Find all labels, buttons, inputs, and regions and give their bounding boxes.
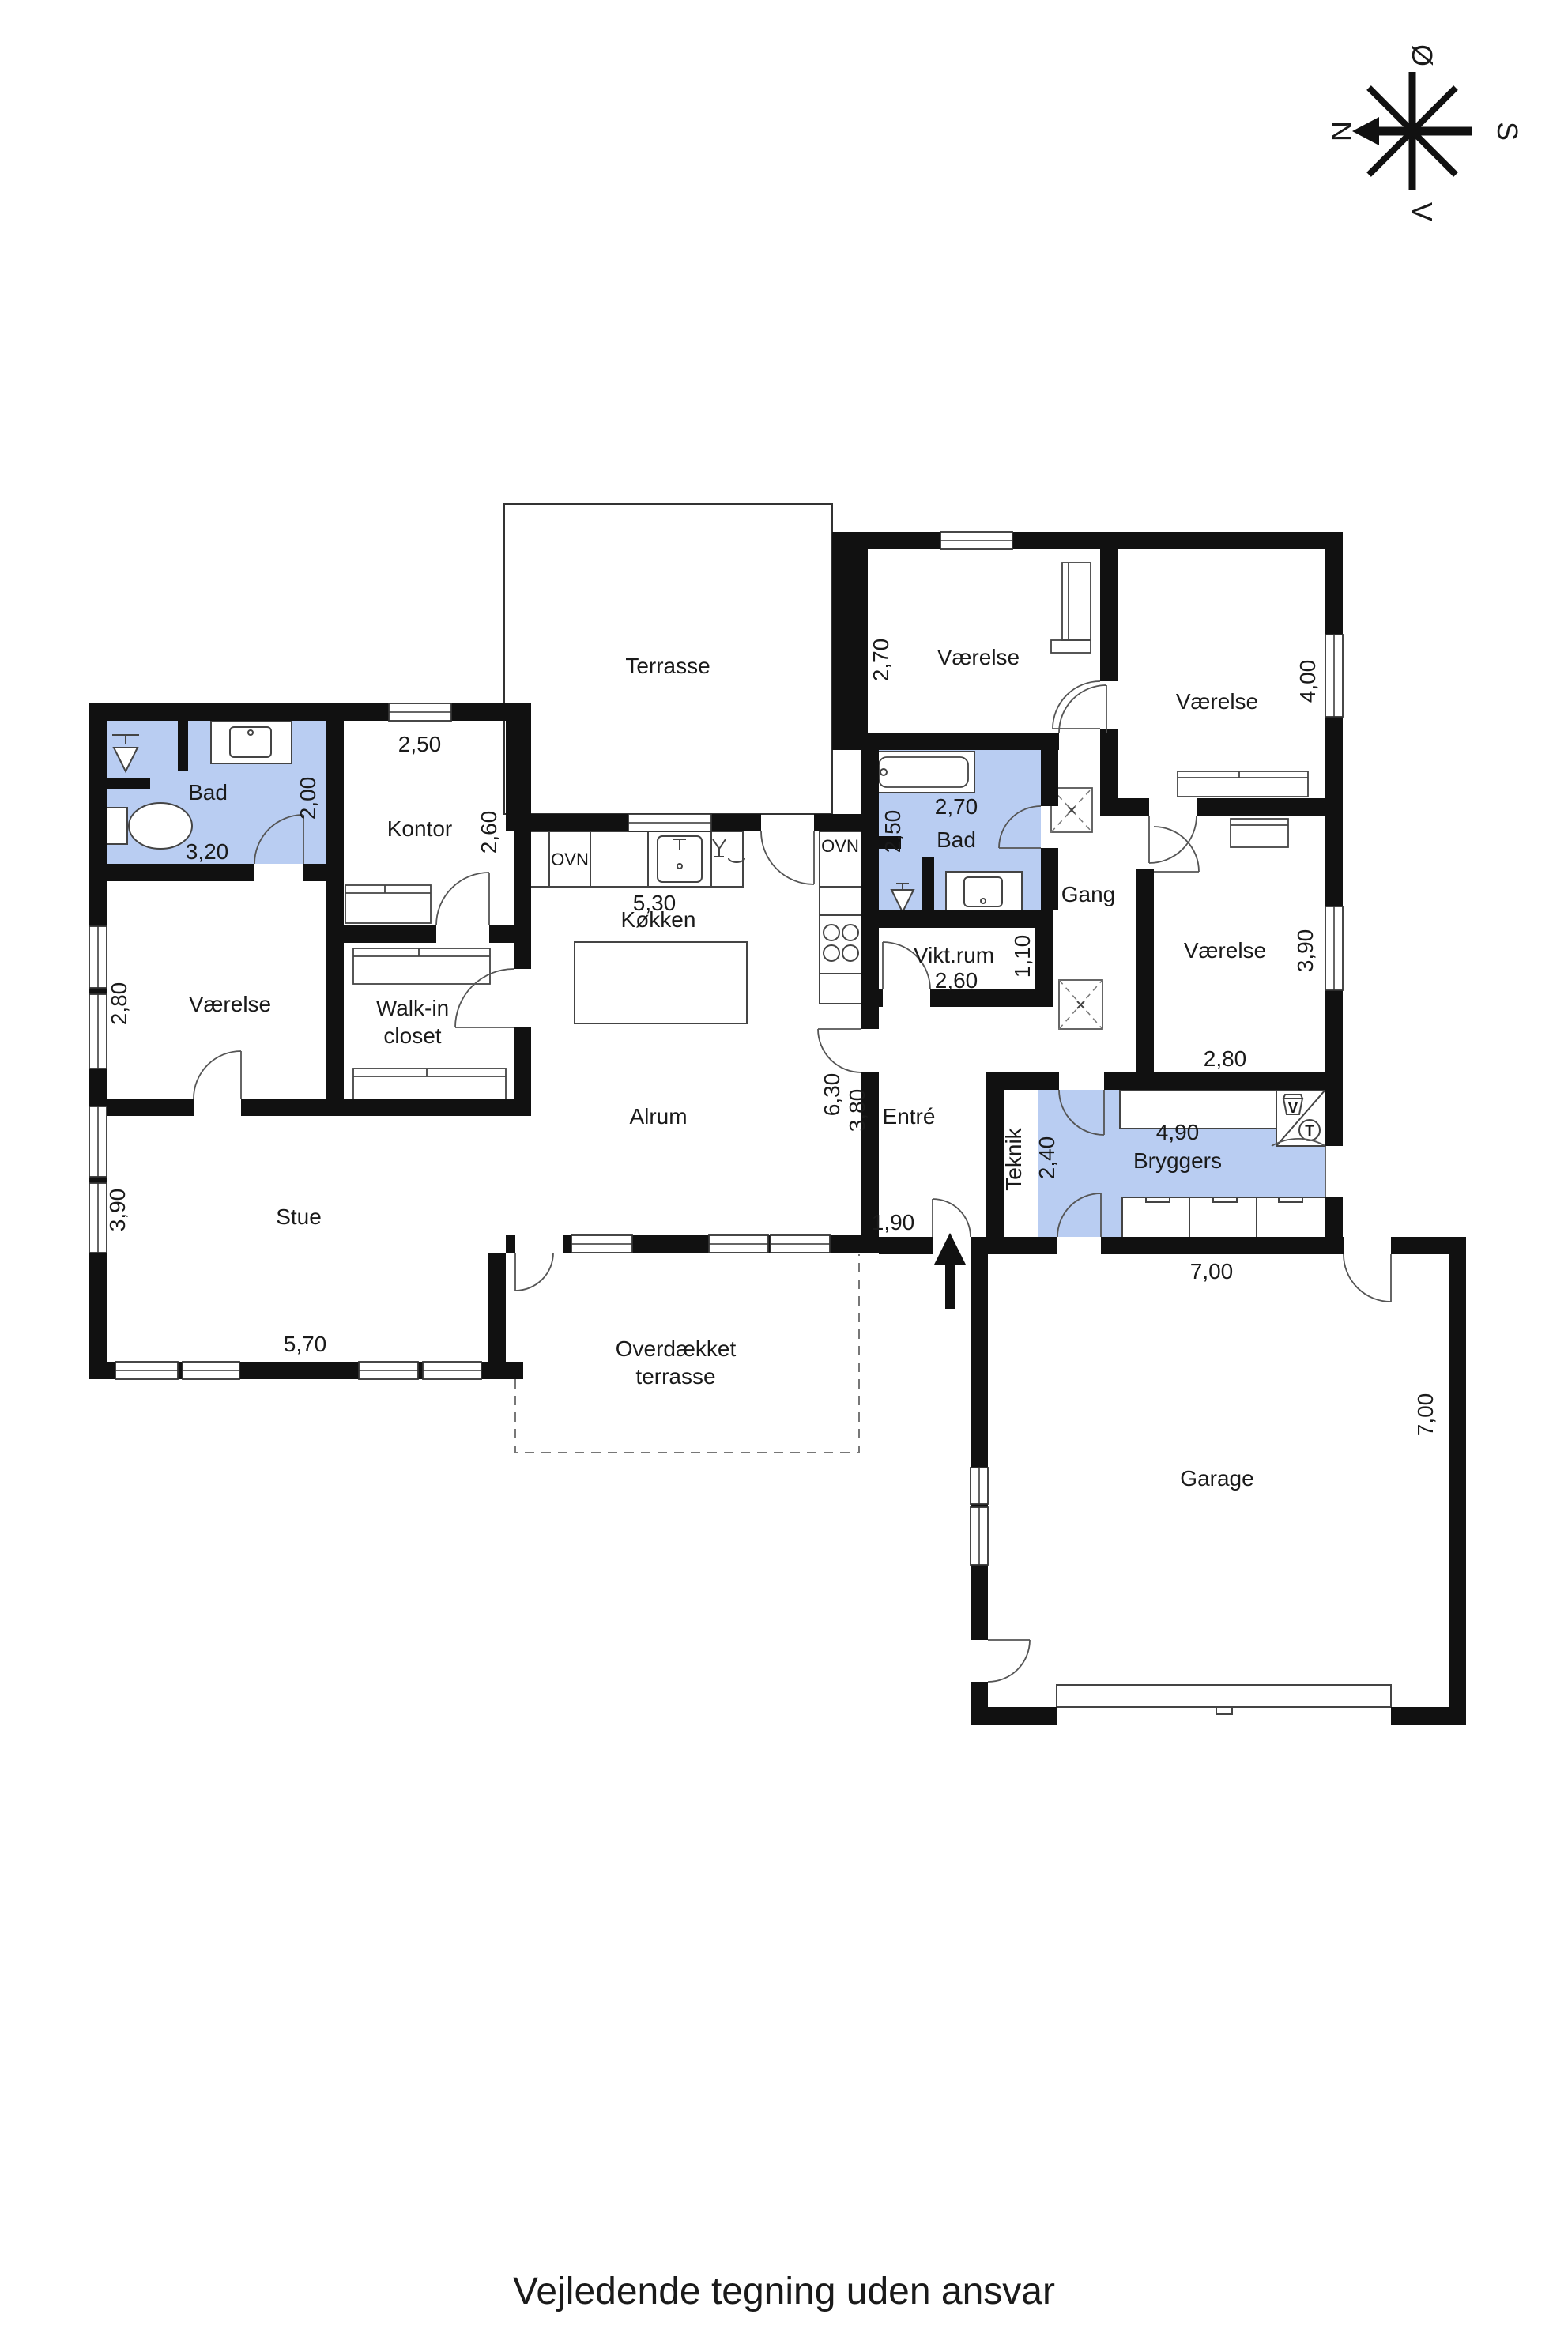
skylight-icon [1059,980,1102,1029]
wardrobe-icon [1178,771,1308,797]
washer-label: V [1288,1100,1298,1117]
room-label-bryggers: Bryggers [1133,1148,1222,1173]
room-label-bad-west: Bad [188,780,228,805]
dim-vaerelse-ne: 4,00 [1295,660,1320,703]
dim-teknik: 2,40 [1035,1136,1059,1180]
window [771,1235,830,1253]
window [1325,906,1343,990]
kitchen-tall-counter [820,831,861,1004]
compass-label-west: V [1406,202,1438,221]
appliance-label-oven-left: OVN [551,850,589,869]
dim-entre-h: 3,80 [845,1089,869,1133]
wardrobe-icon [353,948,490,984]
door-gang-north [1059,685,1106,733]
door-vaerelse-west [194,1051,241,1099]
room-label-alrum: Alrum [629,1104,687,1129]
dim-kontor-h: 2,60 [477,811,501,854]
room-label-entre: Entré [883,1104,936,1129]
window [89,1106,107,1177]
toilet-bowl-icon [129,803,192,849]
disclaimer-text: Vejledende tegning uden ansvar [513,2271,1055,2312]
compass: N Ø S V [1325,44,1524,221]
room-label-bad-middle: Bad [937,827,976,852]
window [183,1362,239,1379]
window [571,1235,632,1253]
window [628,814,711,831]
dim-alrum: 6,30 [820,1073,844,1117]
room-label-overdaekket-2: terrasse [635,1364,715,1389]
room-label-walkin-2: closet [383,1023,441,1048]
compass-label-south: S [1491,122,1524,141]
dim-bad-middle-w: 2,70 [935,794,978,819]
dim-viktrum-h: 1,10 [1010,935,1035,978]
window [89,994,107,1069]
dim-bryggers-outer: 7,00 [1190,1259,1234,1283]
dryer-label: T [1305,1123,1314,1140]
door-front-entrance [933,1199,971,1237]
room-label-koekken: Køkken [621,907,696,932]
bad-west-sink-icon [230,727,271,757]
room-label-terrasse: Terrasse [625,654,710,678]
window [389,703,451,721]
window [423,1362,481,1379]
door-vaerelse-ne [1149,816,1197,863]
wardrobe-icon [1062,563,1091,640]
garage-door [1057,1685,1391,1707]
door-garage-west [988,1640,1030,1682]
room-label-garage: Garage [1180,1466,1253,1491]
door-alrum-terrace [515,1253,553,1291]
dim-stue-w: 5,70 [284,1332,327,1356]
compass-label-north: N [1325,121,1358,141]
dim-bad-middle-h: 2,50 [880,810,905,854]
toilet-tank-icon [107,808,127,844]
room-label-walkin-1: Walk-in [376,996,449,1020]
door-walkin [455,969,514,1027]
wardrobe-rail [353,1069,506,1076]
window [359,1362,418,1379]
wardrobe-icon [345,885,431,923]
windows [89,532,1343,1565]
dim-bryggers-w: 4,90 [1156,1120,1200,1144]
window [940,532,1012,549]
wardrobe-icon [1051,640,1091,653]
room-label-gang: Gang [1061,882,1116,906]
wardrobe-rail [1178,771,1308,778]
bryggers-cabinets [1122,1197,1325,1238]
dim-vaerelse-top: 2,70 [869,639,893,682]
wardrobe-rail [353,948,490,956]
door-garage-north [1344,1254,1391,1302]
door-alrum-entre [818,1029,861,1072]
door-kontor [436,873,489,925]
kitchen-island [575,942,747,1023]
room-label-kontor: Kontor [387,816,453,841]
dim-vaerelse-west: 2,80 [107,982,131,1026]
dim-viktrum-w: 2,60 [935,968,978,993]
door-vaerelse-east [1154,827,1199,872]
dim-garage-h: 7,00 [1413,1393,1438,1437]
window [89,1183,107,1253]
wardrobe-icon [1231,819,1288,847]
appliance-label-oven-right: OVN [821,836,859,856]
bad-middle-sink-icon [964,877,1002,906]
wardrobe-rail [345,885,431,893]
room-label-viktrum: Vikt.rum [914,943,994,967]
room-label-vaerelse-west: Værelse [189,992,271,1016]
window [971,1507,988,1565]
room-label-vaerelse-ne: Værelse [1176,689,1258,714]
compass-label-east: Ø [1406,44,1438,66]
room-label-teknik: Teknik [1001,1127,1026,1190]
garage-door-handle [1216,1707,1232,1714]
window [971,1468,988,1504]
room-label-vaerelse-top: Værelse [937,645,1020,669]
floor-plan-page: N Ø S V Terrasse Værelse 2,70 Værelse 4,… [0,0,1568,2352]
window [1325,635,1343,717]
dim-kontor-w: 2,50 [398,732,442,756]
dim-stue-h: 3,90 [105,1189,130,1232]
room-label-overdaekket-1: Overdækket [616,1336,737,1361]
dim-vaerelse-east-h: 3,90 [1293,929,1317,973]
entrance-arrow-icon [934,1233,966,1309]
room-label-stue: Stue [276,1204,322,1229]
window [709,1235,768,1253]
door-terrasse-kitchen [761,831,814,884]
window [89,926,107,988]
dim-bad-west-w: 3,20 [186,839,229,864]
room-label-vaerelse-east: Værelse [1184,938,1266,963]
dim-bad-west-h: 2,00 [296,777,320,820]
dim-entre-w: 1,90 [872,1210,915,1234]
dim-vaerelse-east-w: 2,80 [1204,1046,1247,1071]
floor-plan-drawing: N Ø S V Terrasse Værelse 2,70 Værelse 4,… [0,0,1568,2352]
window [115,1362,178,1379]
